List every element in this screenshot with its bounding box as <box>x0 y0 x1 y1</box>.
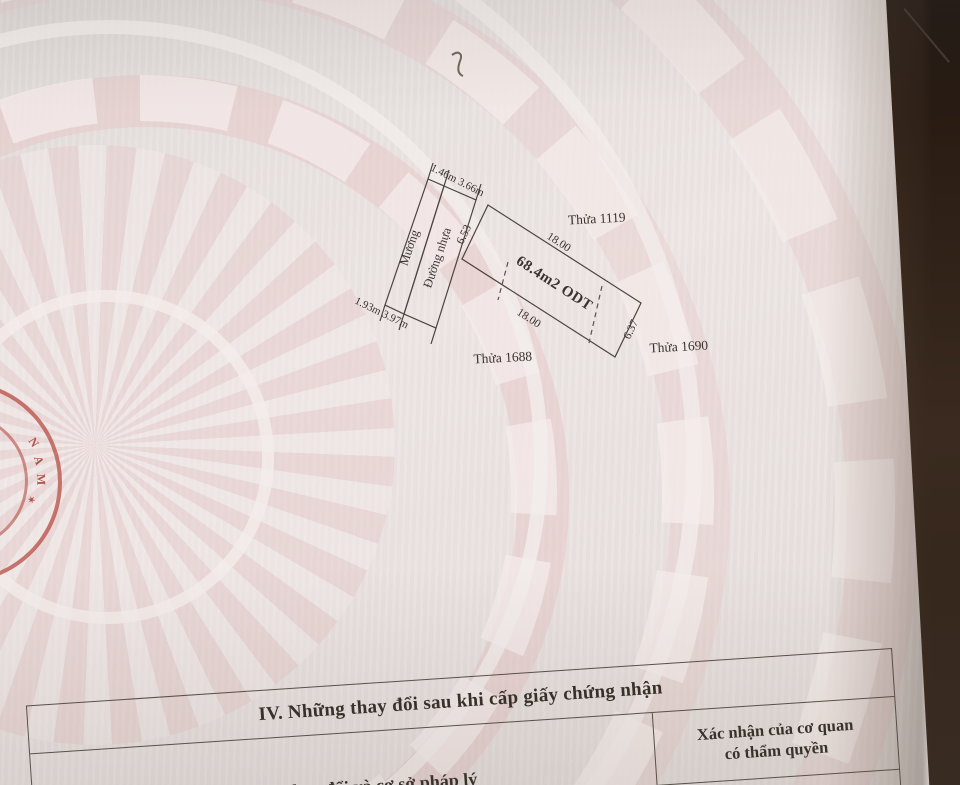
neighbor-parcel-top-label: Thửa 1119 <box>568 209 627 227</box>
parcel-length-bottom-label: 18.00 <box>515 306 543 330</box>
parcel-dashed-divider-right <box>589 286 602 343</box>
road-label: Đường nhựa <box>420 225 454 289</box>
neighbor-parcel-right-label: Thửa 1690 <box>649 337 709 355</box>
canal-label: Mương <box>397 227 423 267</box>
photographed-certificate-page: N A M ✶ 1.46m 3.66m 1.93m 3.97m Mương Đư… <box>0 0 960 785</box>
paper-scratch-mark <box>452 53 463 76</box>
dim-tick <box>431 328 436 344</box>
top-widths-label: 1.46m 3.66m <box>429 162 487 199</box>
neighbor-parcel-bottom-label: Thửa 1688 <box>473 348 533 366</box>
parcel-side-left-label: 6.53 <box>454 223 474 247</box>
parcel-length-top-label: 18.00 <box>545 230 573 254</box>
parcel-dashed-divider-left <box>498 262 508 300</box>
parcel-area-label: 68.4m2 ODT <box>513 253 595 314</box>
parcel-side-right-label: 6.37 <box>621 318 641 342</box>
